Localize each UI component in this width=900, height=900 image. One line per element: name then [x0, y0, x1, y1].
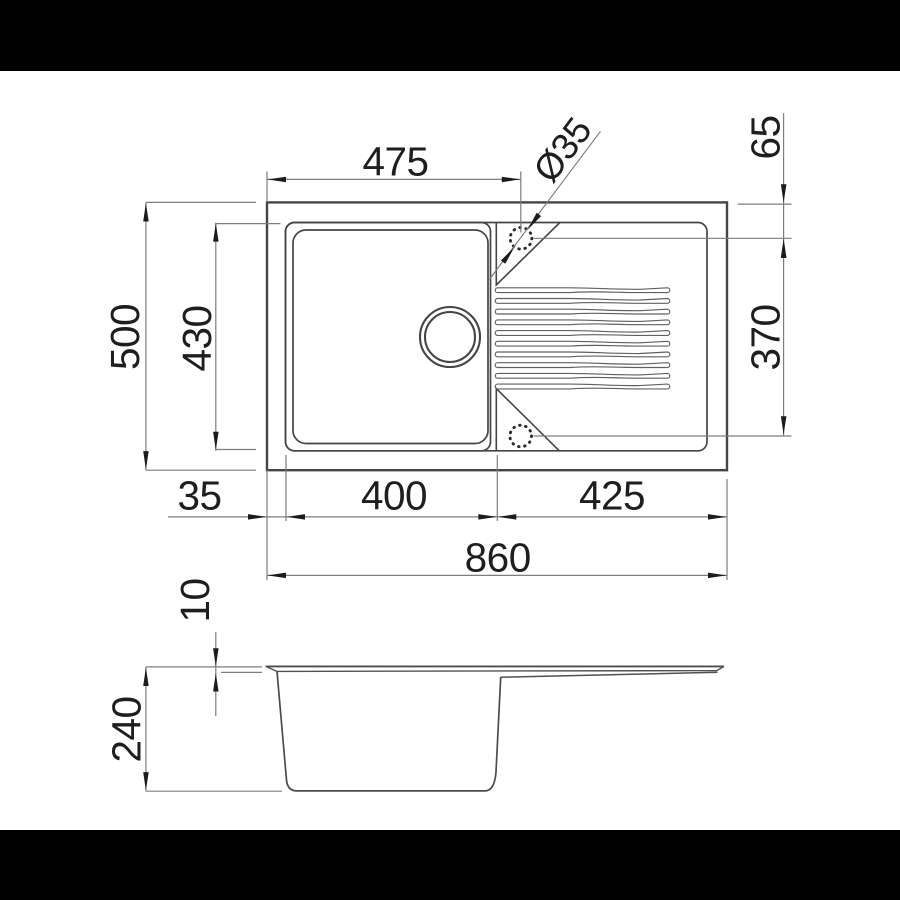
svg-text:860: 860 [465, 535, 531, 581]
svg-text:425: 425 [579, 473, 645, 519]
svg-text:240: 240 [104, 696, 150, 762]
svg-text:65: 65 [743, 115, 789, 159]
svg-text:370: 370 [743, 304, 789, 370]
svg-text:430: 430 [174, 305, 220, 371]
svg-text:35: 35 [177, 473, 221, 519]
svg-text:475: 475 [362, 139, 428, 185]
svg-text:400: 400 [361, 473, 427, 519]
svg-text:10: 10 [172, 578, 218, 622]
svg-text:500: 500 [102, 304, 148, 370]
